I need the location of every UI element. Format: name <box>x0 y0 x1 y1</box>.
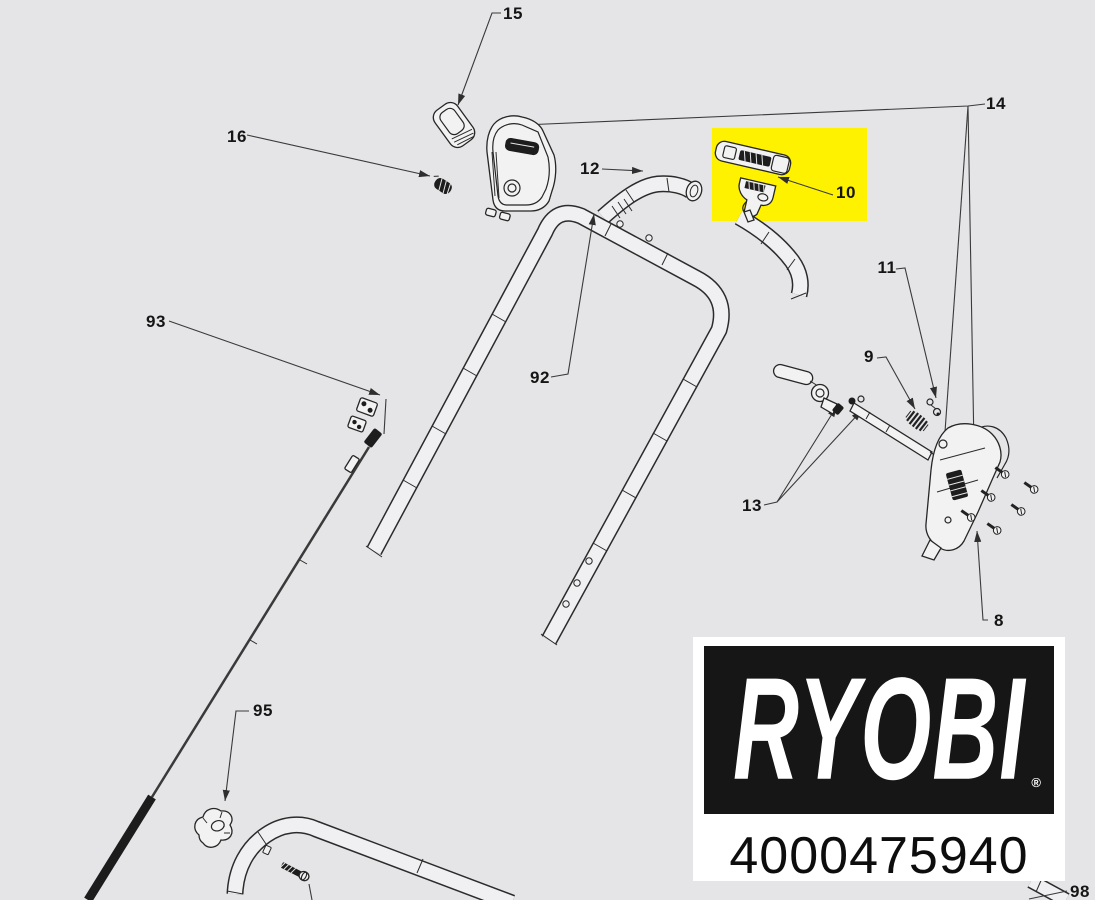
brand-box: RYOBI ® 4000475940 <box>693 637 1065 881</box>
spring-9-glyph <box>904 409 930 434</box>
part-16-glyph <box>429 174 454 196</box>
brake-rod-glyph <box>849 396 937 467</box>
part-label-12[interactable]: 12 <box>580 159 600 179</box>
part-label-11[interactable]: 11 <box>878 258 897 278</box>
part-label-13[interactable]: 13 <box>742 496 762 516</box>
bottom-screw-glyph <box>280 861 311 883</box>
part-label-10[interactable]: 10 <box>836 183 856 203</box>
part-label-15[interactable]: 15 <box>503 4 523 24</box>
handle-mount-bracket-glyph <box>922 424 1009 560</box>
part-label-93[interactable]: 93 <box>146 312 166 332</box>
registered-trademark-symbol: ® <box>1031 775 1041 790</box>
part-label-98[interactable]: 98 <box>1070 882 1090 900</box>
part-label-95[interactable]: 95 <box>253 701 273 721</box>
part-label-92[interactable]: 92 <box>530 368 550 388</box>
part-label-14[interactable]: 14 <box>986 94 1006 114</box>
knob-95-glyph <box>195 809 232 848</box>
brand-name: RYOBI <box>733 647 1026 814</box>
lower-handle-tube-92-glyph <box>366 213 721 645</box>
part-label-8[interactable]: 8 <box>994 611 1004 631</box>
part-sku-number: 4000475940 <box>693 826 1065 886</box>
cable-93-glyph <box>88 397 382 900</box>
part-label-9[interactable]: 9 <box>864 347 874 367</box>
brand-logo: RYOBI ® <box>704 646 1054 814</box>
part-15-glyph <box>430 99 479 151</box>
highlight-part-10-region[interactable] <box>712 128 867 221</box>
swivel-11-glyph <box>927 399 941 416</box>
console-glyph <box>485 116 556 221</box>
bail-lever-glyph <box>772 363 844 415</box>
part-label-16[interactable]: 16 <box>227 127 247 147</box>
parts-diagram-page: 151612101411913892939598 RYOBI ® 4000475… <box>0 0 1095 900</box>
